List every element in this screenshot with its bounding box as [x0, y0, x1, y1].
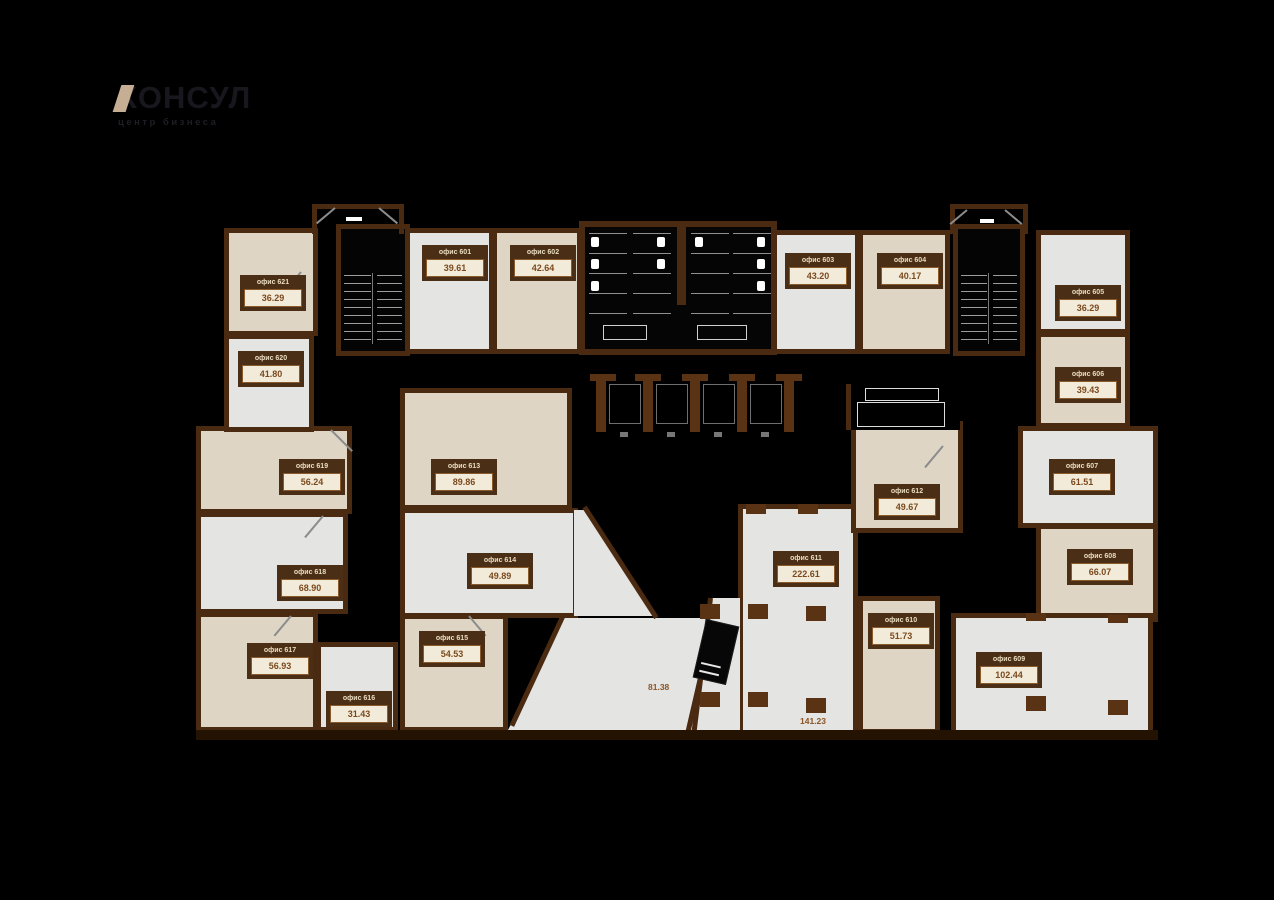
toilet-icon	[657, 237, 665, 247]
door-opening	[346, 217, 362, 221]
room-label: офис 605 36.29	[1055, 285, 1121, 321]
room-615[interactable]: офис 615 54.53	[400, 614, 508, 732]
room-label: офис 619 56.24	[279, 459, 345, 495]
room-612[interactable]: офис 612 49.67	[851, 421, 963, 533]
common-area-value: 81.38	[648, 682, 669, 692]
room-label: офис 604 40.17	[877, 253, 943, 289]
elevator-shaft	[703, 384, 735, 424]
fixture-icon	[865, 388, 939, 401]
room-619[interactable]: офис 619 56.24	[196, 426, 352, 514]
elevator-door	[667, 432, 675, 437]
room-label: офис 601 39.61	[422, 245, 488, 281]
room-606[interactable]: офис 606 39.43	[1036, 332, 1130, 428]
wc-block	[579, 221, 777, 355]
room-603[interactable]: офис 603 43.20	[764, 230, 860, 354]
elevator-wall	[737, 378, 747, 432]
room-label: офис 602 42.64	[510, 245, 576, 281]
room-label: офис 610 51.73	[868, 613, 934, 649]
elevator-wall	[690, 378, 700, 432]
wall-tab	[1026, 613, 1046, 621]
room-label: офис 612 49.67	[874, 484, 940, 520]
room-label: офис 615 54.53	[419, 631, 485, 667]
elevator-wall	[784, 378, 794, 432]
elevator-door	[714, 432, 722, 437]
toilet-icon	[757, 259, 765, 269]
room-620[interactable]: офис 620 41.80	[224, 334, 314, 432]
wall-tab	[798, 504, 818, 514]
stairs-icon	[961, 275, 987, 342]
stair-divider	[988, 273, 993, 344]
wc-divider-wall	[677, 227, 686, 305]
room-607[interactable]: офис 607 61.51	[1018, 426, 1158, 528]
room-label: офис 618 68.90	[277, 565, 343, 601]
room-604[interactable]: офис 604 40.17	[858, 230, 950, 354]
room-label: офис 614 49.89	[467, 553, 533, 589]
column	[700, 604, 720, 619]
room-label: офис 617 56.93	[247, 643, 313, 679]
room-label: офис 621 36.29	[240, 275, 306, 311]
toilet-icon	[591, 259, 599, 269]
room-618[interactable]: офис 618 68.90	[196, 512, 348, 614]
room-label: офис 607 61.51	[1049, 459, 1115, 495]
sink-icon	[697, 325, 747, 340]
room-601[interactable]: офис 601 39.61	[404, 228, 494, 354]
door-opening	[980, 219, 994, 223]
column	[748, 604, 768, 619]
wall-tab	[1108, 615, 1128, 623]
stairs-icon	[991, 275, 1017, 342]
column	[806, 606, 826, 621]
column	[1026, 696, 1046, 711]
room-616[interactable]: офис 616 31.43	[316, 642, 398, 732]
toilet-icon	[591, 281, 599, 291]
elevator-wall	[596, 378, 606, 432]
logo-text: КОНСУЛ	[118, 80, 251, 115]
elevator-shaft	[656, 384, 688, 424]
utility-room	[846, 384, 960, 430]
wc-stalls	[633, 233, 671, 317]
toilet-icon	[695, 237, 703, 247]
elevator-shaft	[750, 384, 782, 424]
floor-plan-page: КОНСУЛ центр бизнеса офис 601 39.61 офис…	[0, 0, 1274, 900]
room-label: офис 609 102.44	[976, 652, 1042, 688]
stairwell-left	[336, 224, 410, 356]
room-label: офис 606 39.43	[1055, 367, 1121, 403]
elevator-door	[761, 432, 769, 437]
stairs-icon	[344, 275, 371, 342]
logo-subtitle-text: центр бизнеса	[118, 117, 218, 128]
room-617[interactable]: офис 617 56.93	[196, 612, 318, 732]
stairs-icon	[375, 275, 402, 342]
fixture-icon	[857, 402, 945, 427]
room-609[interactable]: офис 609 102.44	[951, 613, 1153, 735]
room-613[interactable]: офис 613 89.86	[400, 388, 572, 510]
room-621[interactable]: офис 621 36.29	[224, 228, 318, 336]
room-605[interactable]: офис 605 36.29	[1036, 230, 1130, 334]
logo-title: КОНСУЛ	[118, 82, 318, 113]
stairwell-right	[953, 224, 1025, 356]
toilet-icon	[757, 237, 765, 247]
room-label: офис 603 43.20	[785, 253, 851, 289]
room-label: офис 608 66.07	[1067, 549, 1133, 585]
room-602[interactable]: офис 602 42.64	[492, 228, 582, 354]
exterior-wall-bottom	[196, 730, 1158, 740]
toilet-icon	[591, 237, 599, 247]
common-area-value: 141.23	[800, 716, 826, 726]
column	[1108, 700, 1128, 715]
room-608[interactable]: офис 608 66.07	[1036, 524, 1158, 622]
wc-stalls	[733, 233, 771, 317]
room-label: офис 620 41.80	[238, 351, 304, 387]
room-label: офис 616 31.43	[326, 691, 392, 727]
logo-subtitle: центр бизнеса	[118, 117, 318, 128]
room-label: офис 613 89.86	[431, 459, 497, 495]
room-614[interactable]: офис 614 49.89	[400, 508, 578, 618]
elevator-wall	[643, 378, 653, 432]
toilet-icon	[757, 281, 765, 291]
room-label: офис 611 222.61	[773, 551, 839, 587]
common-area-terrace[interactable]	[507, 618, 719, 732]
column	[806, 698, 826, 713]
elevator-door	[620, 432, 628, 437]
room-610[interactable]: офис 610 51.73	[858, 596, 940, 734]
stair-divider	[372, 273, 377, 344]
logo: КОНСУЛ центр бизнеса	[118, 82, 318, 128]
elevator-bank	[596, 374, 796, 438]
column	[748, 692, 768, 707]
toilet-icon	[657, 259, 665, 269]
elevator-shaft	[609, 384, 641, 424]
sink-icon	[603, 325, 647, 340]
wall-tab	[746, 504, 766, 514]
column	[700, 692, 720, 707]
